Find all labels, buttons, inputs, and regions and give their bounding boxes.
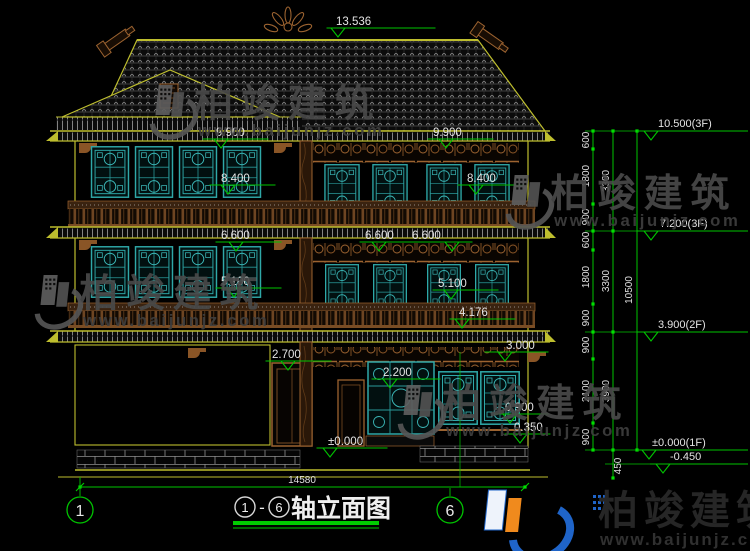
- level-eave1f: 3.000: [506, 340, 535, 352]
- axis-bubble-left: 1: [67, 497, 93, 523]
- level-lintel3f-right: 8.400: [467, 173, 496, 185]
- eave-band-2f: [46, 227, 556, 238]
- svg-text:600: 600: [581, 231, 592, 248]
- right-level-markers: 10.500(3F) 7.200(3F) 3.900(2F) ±0.000(1F…: [637, 118, 748, 473]
- title-block: 1 - 6 轴立面图: [233, 494, 391, 529]
- svg-text:900: 900: [581, 309, 592, 326]
- level-ridge: 13.536: [336, 16, 371, 28]
- footer-brand-name: 柏竣建筑: [598, 489, 750, 533]
- footer-brand-url: www.baijunjz.com: [599, 530, 750, 549]
- level-window1f: 2.200: [383, 367, 412, 379]
- svg-text:600: 600: [581, 131, 592, 148]
- svg-text:900: 900: [581, 336, 592, 353]
- level-roof3f-right: 9.900: [433, 127, 462, 139]
- level-eave2f-mid: 6.600: [365, 230, 394, 242]
- level-ground: ±0.000: [328, 436, 363, 448]
- overall-width-dim: 14580: [288, 475, 316, 486]
- drawing-title: 轴立面图: [291, 494, 391, 523]
- svg-text:3300: 3300: [601, 269, 612, 292]
- svg-text:6: 6: [446, 503, 455, 520]
- right-level-3: ±0.000(1F): [652, 437, 706, 449]
- right-level-0: 10.500(3F): [658, 118, 712, 130]
- fascia-2f: [313, 243, 519, 263]
- level-rail2f: 4.176: [459, 307, 488, 319]
- fascia-3f: [313, 143, 519, 163]
- brand-logo-icon: [484, 490, 606, 551]
- svg-text:450: 450: [613, 457, 624, 474]
- axis-bubble-right: 6: [437, 497, 463, 523]
- blank-wall: [75, 345, 270, 445]
- svg-text:1800: 1800: [581, 265, 592, 288]
- right-level-2: 3.900(2F): [658, 319, 706, 331]
- level-eave2f-right: 6.600: [412, 230, 441, 242]
- floor-3: [68, 141, 535, 227]
- level-lintel3f-left: 8.400: [221, 173, 250, 185]
- level-eave2f-left: 6.600: [221, 230, 250, 242]
- footer-brand-logo: 柏竣建筑 www.baijunjz.com: [484, 489, 750, 551]
- title-axis-end: 6: [275, 500, 282, 515]
- right-level-4: -0.450: [670, 451, 701, 463]
- level-lintel2f-right: 5.100: [438, 278, 467, 290]
- title-axis-start: 1: [241, 500, 248, 515]
- title-separator: -: [259, 498, 265, 517]
- elevation-drawing: 柏竣建筑 www.baijunjz.com: [0, 0, 750, 551]
- eave-band-1f: [46, 331, 556, 342]
- svg-text:1: 1: [76, 503, 85, 520]
- balcony-rail-3f: [68, 201, 535, 227]
- level-door1f: 2.700: [272, 349, 301, 361]
- ridge-ornament: [263, 7, 312, 33]
- cad-drawing-canvas: 柏竣建筑 www.baijunjz.com: [0, 0, 750, 551]
- svg-text:10500: 10500: [624, 276, 635, 304]
- log-column: [300, 342, 312, 446]
